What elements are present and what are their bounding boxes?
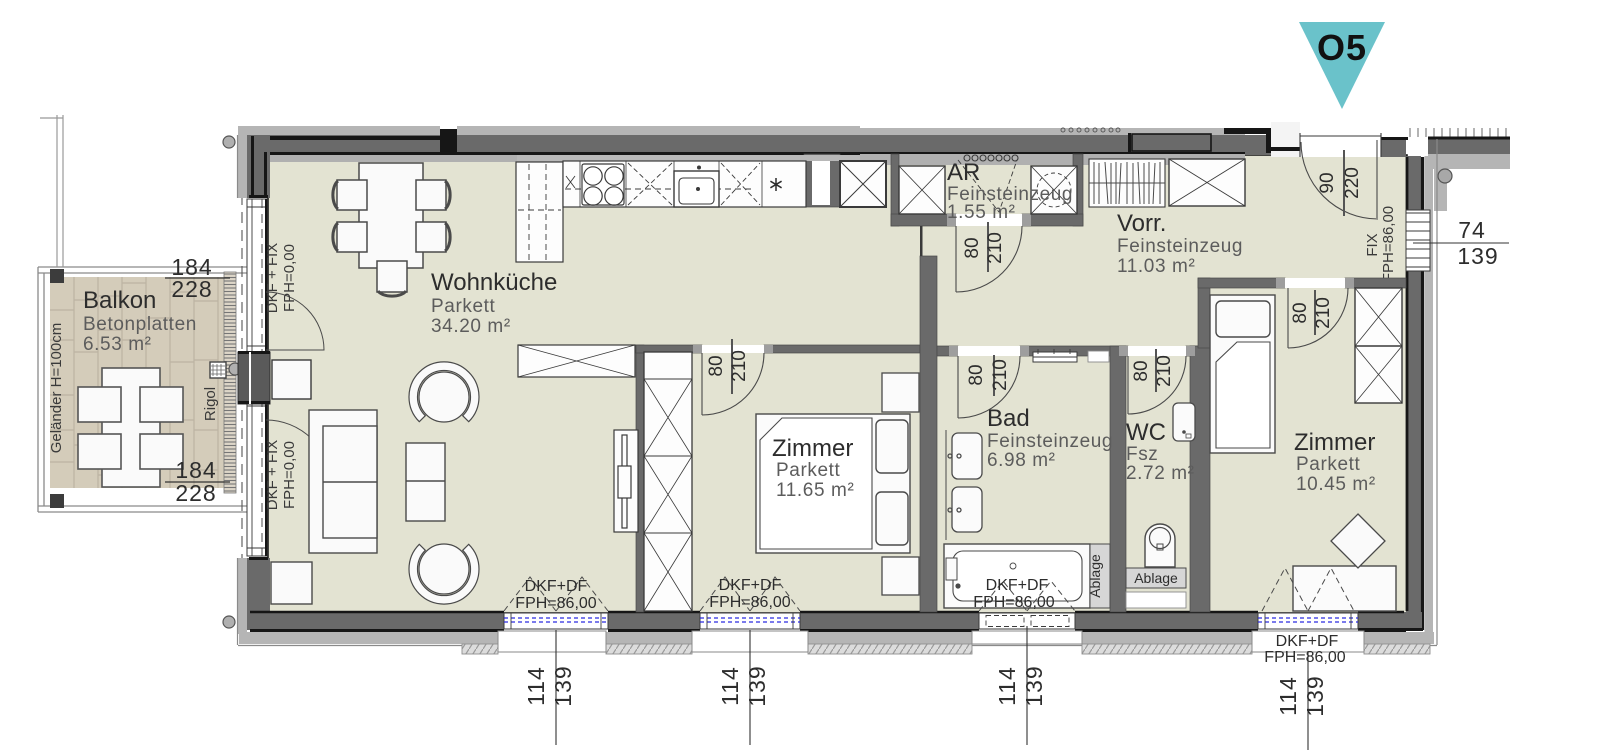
svg-text:O5: O5 xyxy=(1317,27,1367,68)
svg-text:Parkett: Parkett xyxy=(1296,454,1361,475)
svg-text:Wohnküche: Wohnküche xyxy=(431,269,557,296)
svg-text:Zimmer: Zimmer xyxy=(1294,429,1375,456)
svg-text:2.72 m²: 2.72 m² xyxy=(1126,463,1195,484)
svg-text:139: 139 xyxy=(1021,665,1047,706)
svg-text:Rigol: Rigol xyxy=(202,387,219,421)
svg-text:DKF+DF: DKF+DF xyxy=(525,578,588,595)
svg-text:11.65 m²: 11.65 m² xyxy=(776,480,854,501)
svg-text:114: 114 xyxy=(717,666,743,706)
svg-text:80: 80 xyxy=(706,355,727,376)
svg-text:FPH=0,00: FPH=0,00 xyxy=(281,244,298,312)
svg-text:Ablage: Ablage xyxy=(1134,570,1178,586)
svg-text:Feinsteinzeug: Feinsteinzeug xyxy=(987,431,1113,452)
svg-text:AR: AR xyxy=(947,159,980,186)
svg-text:139: 139 xyxy=(550,665,576,706)
svg-text:Bad: Bad xyxy=(987,405,1030,432)
svg-text:228: 228 xyxy=(171,276,212,302)
svg-text:FIX: FIX xyxy=(1364,233,1381,256)
svg-text:114: 114 xyxy=(994,666,1020,706)
svg-text:FPH=86,00: FPH=86,00 xyxy=(1264,649,1345,666)
svg-text:80: 80 xyxy=(966,364,987,385)
svg-text:11.03 m²: 11.03 m² xyxy=(1117,256,1195,277)
svg-text:FPH=86,00: FPH=86,00 xyxy=(709,594,790,611)
svg-text:FPH=86,00: FPH=86,00 xyxy=(515,595,596,612)
svg-text:114: 114 xyxy=(523,666,549,706)
svg-text:90: 90 xyxy=(1317,172,1338,193)
svg-text:DKF+DF: DKF+DF xyxy=(719,577,782,594)
svg-text:Betonplatten: Betonplatten xyxy=(83,314,197,335)
svg-text:FPH=0,00: FPH=0,00 xyxy=(281,441,298,509)
svg-text:DKF + FIX: DKF + FIX xyxy=(264,440,281,510)
svg-text:210: 210 xyxy=(1313,297,1334,329)
svg-text:80: 80 xyxy=(1290,302,1311,323)
svg-text:Vorr.: Vorr. xyxy=(1117,210,1166,237)
svg-text:Parkett: Parkett xyxy=(776,460,841,481)
svg-text:Parkett: Parkett xyxy=(431,296,496,317)
svg-text:139: 139 xyxy=(1457,243,1498,269)
svg-text:74: 74 xyxy=(1458,217,1486,243)
svg-text:FPH=86,00: FPH=86,00 xyxy=(1380,206,1397,282)
svg-text:210: 210 xyxy=(990,359,1011,391)
svg-text:114: 114 xyxy=(1275,676,1301,716)
svg-text:DKF+DF: DKF+DF xyxy=(986,577,1049,594)
svg-text:210: 210 xyxy=(729,350,750,382)
svg-text:WC: WC xyxy=(1126,419,1166,446)
svg-text:Ablage: Ablage xyxy=(1087,554,1103,598)
svg-text:1.55 m²: 1.55 m² xyxy=(947,202,1016,223)
svg-text:210: 210 xyxy=(1154,355,1175,387)
svg-text:80: 80 xyxy=(1131,360,1152,381)
svg-text:228: 228 xyxy=(175,480,216,506)
svg-text:220: 220 xyxy=(1342,167,1363,199)
svg-text:210: 210 xyxy=(985,232,1006,264)
svg-text:DKF + FIX: DKF + FIX xyxy=(264,243,281,313)
svg-text:139: 139 xyxy=(744,665,770,706)
svg-text:Fsz: Fsz xyxy=(1126,444,1158,465)
svg-text:DKF+DF: DKF+DF xyxy=(1276,633,1339,650)
svg-text:Zimmer: Zimmer xyxy=(772,435,853,462)
svg-text:80: 80 xyxy=(962,237,983,258)
svg-text:Feinsteinzeug: Feinsteinzeug xyxy=(1117,236,1243,257)
svg-text:6.98 m²: 6.98 m² xyxy=(987,450,1056,471)
svg-text:34.20 m²: 34.20 m² xyxy=(431,316,511,337)
svg-text:10.45 m²: 10.45 m² xyxy=(1296,474,1376,495)
svg-text:6.53 m²: 6.53 m² xyxy=(83,334,152,355)
svg-text:Geländer H=100cm: Geländer H=100cm xyxy=(48,323,65,454)
svg-text:139: 139 xyxy=(1302,675,1328,716)
svg-text:Balkon: Balkon xyxy=(83,287,156,314)
svg-text:FPH=86,00: FPH=86,00 xyxy=(973,594,1054,611)
